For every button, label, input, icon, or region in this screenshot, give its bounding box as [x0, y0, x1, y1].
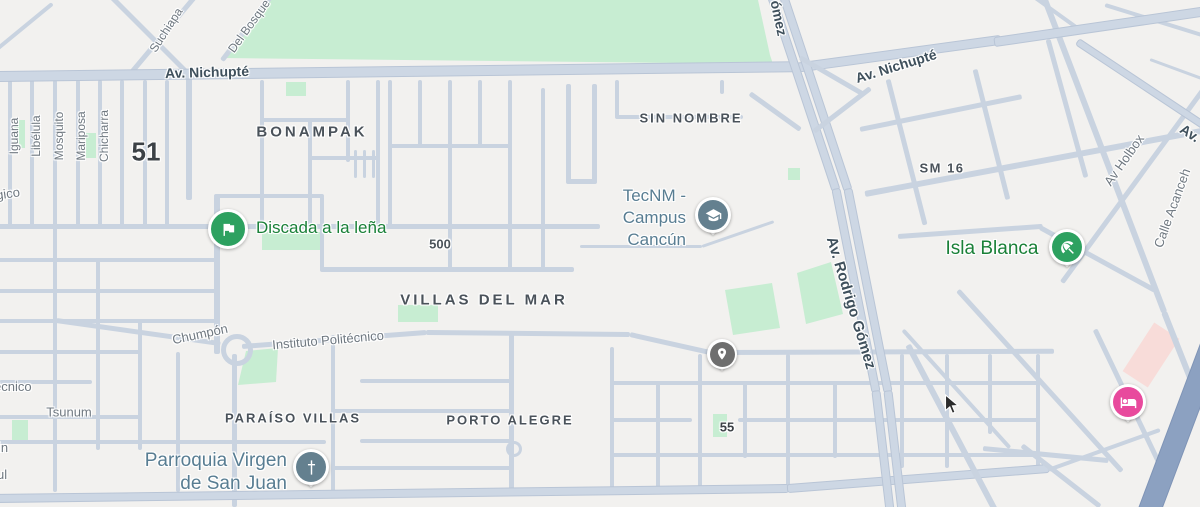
road-segment — [360, 439, 511, 443]
mouse-cursor — [944, 394, 960, 416]
road-segment — [388, 80, 392, 226]
road-segment — [566, 84, 571, 182]
street-label: Tsunum — [46, 405, 92, 420]
road-segment — [698, 354, 702, 489]
road-segment — [186, 76, 192, 200]
roundabout — [221, 334, 253, 366]
road-segment — [388, 144, 512, 148]
pin-body — [1052, 232, 1082, 262]
mini-roundabout — [506, 441, 522, 457]
road-segment — [308, 156, 380, 160]
park-area — [12, 420, 28, 440]
poi-label-line: Campus — [486, 207, 686, 229]
area-label-sm16: SM 16 — [919, 161, 964, 176]
road-segment — [260, 80, 264, 226]
road-segment — [360, 379, 511, 383]
road-segment — [615, 80, 619, 118]
park-area — [718, 280, 782, 338]
road-segment — [788, 465, 1049, 492]
road-segment — [973, 69, 1011, 200]
poi-label-tecnm[interactable]: TecNM - Campus Cancún — [486, 185, 686, 251]
road-segment — [0, 2, 54, 51]
street-label: Instituto Politécnico — [272, 328, 385, 353]
poi-marker-hotel[interactable] — [1110, 384, 1146, 420]
road-segment — [0, 258, 218, 262]
block-number-500: 500 — [429, 237, 451, 252]
poi-label-line: Parroquia Virgen — [87, 449, 287, 472]
road-segment — [331, 466, 511, 470]
street-label: Mariposa — [74, 111, 88, 160]
street-label: ul — [0, 467, 7, 482]
poi-label-parroquia[interactable]: Parroquia Virgen de San Juan — [87, 449, 287, 495]
road-segment — [566, 179, 597, 184]
road-segment — [426, 330, 630, 337]
pin-body — [710, 342, 735, 367]
street-label: Chicharra — [97, 110, 111, 162]
road-segment — [592, 84, 597, 182]
street-label: gico — [0, 184, 21, 202]
street-label: in — [0, 440, 8, 455]
road-segment — [900, 354, 904, 468]
beach-umbrella-icon — [1059, 239, 1076, 256]
pin-body — [698, 200, 728, 230]
road-segment — [418, 80, 422, 146]
poi-marker-tecnm[interactable] — [695, 197, 731, 233]
road-segment — [478, 80, 482, 146]
road-segment — [372, 150, 375, 178]
hotel-bed-icon — [1120, 394, 1137, 411]
road-segment — [610, 418, 692, 422]
block-number-51: 51 — [132, 137, 161, 168]
poi-label-discada[interactable]: Discada a la leña — [256, 218, 386, 238]
area-label-paraiso-villas: PARAÍSO VILLAS — [225, 411, 361, 426]
road-segment — [138, 321, 142, 450]
road-segment — [610, 453, 1040, 457]
area-label-bonampak: BONAMPAK — [256, 124, 367, 141]
road-label-nichupte: Av. Nichupté — [165, 63, 249, 81]
street-label: Iguana — [7, 118, 21, 155]
road-segment — [629, 332, 710, 355]
road-segment — [886, 79, 928, 226]
pin-body — [1113, 387, 1143, 417]
school-icon — [705, 207, 722, 224]
road-segment — [610, 381, 1040, 385]
poi-label-line: TecNM - — [486, 185, 686, 207]
street-label: écnico — [0, 379, 32, 394]
flag-icon — [220, 221, 237, 238]
road-segment — [0, 350, 142, 354]
road-segment — [720, 80, 724, 94]
block-number-55: 55 — [720, 420, 734, 435]
park-area — [218, 0, 788, 66]
road-segment — [53, 226, 57, 492]
ramp-segment — [749, 91, 802, 131]
area-label-sin-nombre: SIN NOMBRE — [639, 111, 742, 126]
poi-marker-parroquia[interactable] — [293, 449, 329, 485]
road-segment — [354, 150, 357, 178]
poi-label-line: Cancún — [486, 229, 686, 251]
road-segment — [0, 289, 218, 293]
road-segment — [0, 440, 326, 444]
place-pin-icon — [715, 347, 729, 361]
park-area — [286, 82, 306, 96]
road-av-nichupte — [0, 62, 795, 81]
road-segment — [898, 224, 1043, 239]
road-segment — [860, 94, 1023, 132]
road-segment — [214, 194, 324, 198]
park-area — [788, 168, 800, 180]
road-segment — [1047, 428, 1160, 472]
road-segment — [320, 267, 574, 272]
road-segment — [0, 319, 218, 323]
road-segment — [120, 80, 124, 226]
area-label-porto-alegre: PORTO ALEGRE — [446, 413, 573, 428]
pin-body — [296, 452, 326, 482]
street-label: Calle Acanceh — [1151, 166, 1194, 249]
map-canvas[interactable]: Suchiapa Del Bosque Iguana Libélula Mosq… — [0, 0, 1200, 507]
road-segment — [260, 118, 350, 122]
poi-marker-place[interactable] — [707, 339, 737, 369]
poi-label-isla-blanca[interactable]: Isla Blanca — [946, 238, 1039, 260]
road-segment — [1149, 58, 1200, 86]
church-cross-icon — [303, 459, 320, 476]
road-segment — [363, 150, 366, 178]
street-label: Libélula — [29, 115, 43, 156]
poi-marker-discada[interactable] — [208, 209, 248, 249]
road-segment — [905, 344, 998, 507]
road-segment — [656, 383, 660, 489]
area-label-villas-del-mar: VILLAS DEL MAR — [400, 292, 568, 309]
poi-marker-isla-blanca[interactable] — [1049, 229, 1085, 265]
road-segment — [376, 80, 380, 226]
road-segment — [165, 80, 169, 226]
poi-label-line: de San Juan — [87, 472, 287, 495]
road-segment — [96, 260, 100, 450]
street-label: Mosquito — [52, 112, 66, 161]
